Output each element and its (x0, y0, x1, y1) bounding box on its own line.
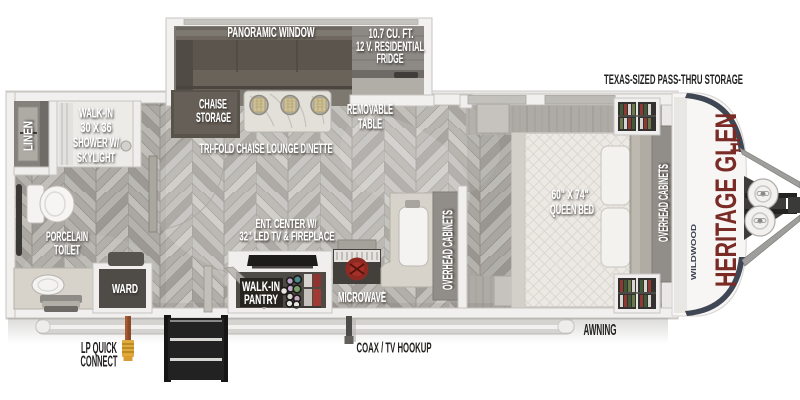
svg-text:32" LED TV & FIREPLACE: 32" LED TV & FIREPLACE (240, 229, 335, 244)
svg-text:WARD: WARD (112, 281, 138, 296)
svg-text:HL: HL (727, 133, 743, 152)
svg-text:60" X 74": 60" X 74" (552, 187, 589, 202)
svg-text:COAX / TV HOOKUP: COAX / TV HOOKUP (357, 340, 432, 357)
svg-text:TRI-FOLD CHAISE LOUNGE DINETTE: TRI-FOLD CHAISE LOUNGE DINETTE (200, 140, 333, 156)
svg-text:30 X 36: 30 X 36 (81, 119, 112, 135)
svg-text:PANORAMIC WINDOW: PANORAMIC WINDOW (228, 25, 315, 41)
svg-text:OVERHEAD CABINETS: OVERHEAD CABINETS (440, 210, 457, 290)
svg-text:STORAGE: STORAGE (196, 109, 231, 125)
svg-text:SHOWER W/: SHOWER W/ (73, 134, 119, 150)
svg-text:MICROWAVE: MICROWAVE (338, 290, 386, 306)
svg-text:CONNECT: CONNECT (81, 354, 118, 371)
svg-text:TEXAS-SIZED PASS-THRU STORAGE: TEXAS-SIZED PASS-THRU STORAGE (604, 72, 743, 87)
svg-text:TOILET: TOILET (54, 243, 80, 258)
svg-text:TABLE: TABLE (358, 116, 382, 133)
svg-text:AWNING: AWNING (584, 322, 617, 339)
svg-text:LINEN: LINEN (22, 121, 36, 151)
svg-text:FRIDGE: FRIDGE (377, 51, 404, 66)
svg-text:WILDWOOD: WILDWOOD (691, 224, 698, 280)
svg-text:PANTRY: PANTRY (244, 292, 278, 307)
svg-text:SKYLIGHT: SKYLIGHT (77, 149, 115, 165)
svg-text:QUEEN BED: QUEEN BED (550, 202, 594, 217)
svg-text:OVERHEAD CABINETS: OVERHEAD CABINETS (655, 164, 671, 242)
